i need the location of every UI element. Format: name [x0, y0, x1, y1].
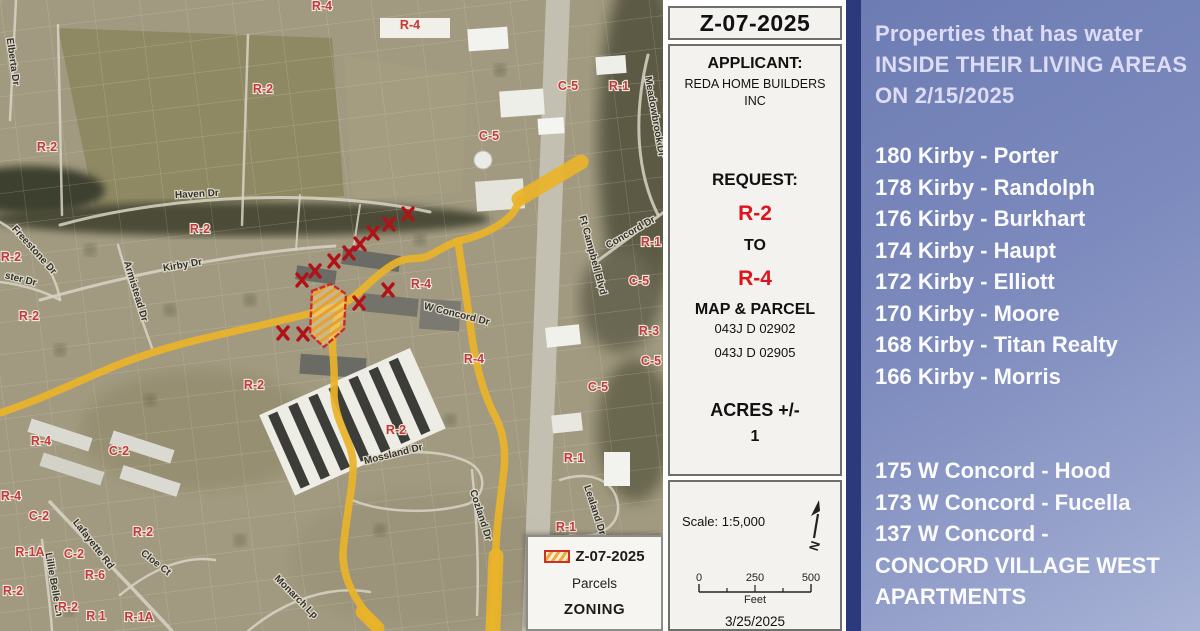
tree-dot: [444, 414, 456, 426]
panel-accent-strip: [846, 0, 861, 631]
tree-dot: [234, 534, 246, 546]
highlighted-road: [493, 556, 496, 630]
svg-text:500: 500: [802, 572, 820, 584]
building: [604, 452, 630, 486]
zone-label: R 1: [86, 609, 106, 623]
water-tank: [474, 151, 492, 169]
zone-label: C-2: [109, 444, 129, 458]
scale-label: Scale: 1:5,000: [682, 514, 765, 529]
street-label: Haven Dr: [175, 188, 220, 201]
tree-dot: [244, 294, 256, 306]
building: [595, 55, 626, 75]
acres-label: ACRES +/-: [710, 400, 800, 421]
building: [467, 27, 508, 52]
svg-text:250: 250: [746, 572, 764, 584]
parcel-number-2: 043J D 02905: [715, 345, 796, 360]
zone-label: R-2: [133, 525, 153, 539]
tree-dot: [164, 304, 176, 316]
zone-label: R-2: [37, 140, 57, 154]
zone-label: R-1A: [124, 610, 153, 624]
parcel-number-1: 043J D 02902: [715, 321, 796, 336]
zoning-map[interactable]: Haven DrKirby DrArmistead DrElberta DrFr…: [0, 0, 663, 631]
acres-value: 1: [751, 428, 760, 446]
zone-label: C-5: [558, 79, 578, 93]
building: [545, 324, 581, 347]
zone-label: R-4: [400, 18, 420, 32]
legend-parcels-label: Parcels: [572, 576, 617, 591]
building: [537, 117, 564, 135]
zone-label: R-1: [609, 79, 629, 93]
scale-bar: 0 250 500 Feet: [689, 570, 821, 606]
zone-label: R-2: [244, 378, 264, 392]
zone-label: C-5: [629, 274, 649, 288]
zone-label: C-5: [641, 354, 661, 368]
zone-label: C-2: [29, 509, 49, 523]
property-list-item: 172 Kirby - Elliott: [875, 266, 1194, 298]
building: [499, 88, 545, 117]
zone-label: C-2: [64, 547, 84, 561]
request-to-word: TO: [744, 237, 766, 255]
map-date: 3/25/2025: [670, 614, 840, 629]
north-letter: N: [806, 539, 823, 553]
property-list-item: 170 Kirby - Moore: [875, 298, 1194, 330]
request-label: REQUEST:: [712, 170, 798, 190]
tree-dot: [374, 524, 386, 536]
tree-dot: [144, 394, 156, 406]
building: [551, 412, 583, 433]
water-panel-title: Properties that has water INSIDE THEIR L…: [875, 18, 1194, 111]
case-number-title: Z-07-2025: [668, 6, 842, 40]
zone-label: R-4: [312, 0, 332, 13]
zone-label: R-6: [85, 568, 105, 582]
zone-label: R-3: [639, 324, 659, 338]
title-line-3: ON 2/15/2025: [875, 80, 1194, 111]
tree-dot: [54, 344, 66, 356]
parcel-hatch-swatch-icon: [544, 550, 570, 563]
zone-label: R-1A: [15, 545, 44, 559]
zone-label: R-2: [58, 600, 78, 614]
zone-label: R-1: [556, 520, 576, 534]
scale-box: Scale: 1:5,000 N 0 250 500 Feet 3/25/: [668, 480, 842, 631]
zone-label: R-2: [19, 309, 39, 323]
property-list-item: 178 Kirby - Randolph: [875, 172, 1194, 204]
zone-label: R-4: [411, 277, 431, 291]
zone-label: R-2: [190, 222, 210, 236]
map-legend: Z-07-2025 Parcels ZONING: [526, 535, 663, 631]
svg-text:0: 0: [696, 572, 702, 584]
request-from-zone: R-2: [738, 202, 772, 226]
water-properties-panel: Properties that has water INSIDE THEIR L…: [846, 0, 1200, 631]
zone-label: R-2: [3, 584, 23, 598]
zone-label: R-4: [31, 434, 51, 448]
property-list-item: 173 W Concord - Fucella: [875, 487, 1194, 519]
property-list-item: 168 Kirby - Titan Realty: [875, 329, 1194, 361]
concord-properties-list: 175 W Concord - Hood173 W Concord - Fuce…: [875, 455, 1194, 613]
title-line-2: INSIDE THEIR LIVING AREAS: [875, 49, 1194, 80]
legend-zoning-label: ZONING: [564, 601, 625, 618]
zone-label: R-1: [564, 451, 584, 465]
zone-label: R-1: [641, 235, 661, 249]
applicant-label: APPLICANT:: [707, 55, 802, 73]
zone-label: R-2: [386, 423, 406, 437]
property-list-item: 174 Kirby - Haupt: [875, 235, 1194, 267]
applicant-name: REDA HOME BUILDERS INC: [680, 76, 830, 110]
north-arrow-icon: N: [806, 498, 828, 556]
property-list-item: 175 W Concord - Hood: [875, 455, 1194, 487]
zone-label: R-4: [464, 352, 484, 366]
property-list-item: 176 Kirby - Burkhart: [875, 203, 1194, 235]
zone-label: C-5: [479, 129, 499, 143]
svg-text:Feet: Feet: [744, 594, 766, 606]
property-list-item: 137 W Concord - CONCORD VILLAGE WEST APA…: [875, 518, 1194, 613]
map-parcel-label: MAP & PARCEL: [695, 301, 815, 319]
property-list-item: 180 Kirby - Porter: [875, 140, 1194, 172]
legend-case-number: Z-07-2025: [575, 548, 644, 565]
zone-label: C-5: [588, 380, 608, 394]
case-details-box: APPLICANT: REDA HOME BUILDERS INC REQUES…: [668, 44, 842, 476]
zoning-presentation-slide: Haven DrKirby DrArmistead DrElberta DrFr…: [0, 0, 1200, 631]
request-to-zone: R-4: [738, 267, 772, 291]
kirby-properties-list: 180 Kirby - Porter178 Kirby - Randolph17…: [875, 140, 1194, 392]
info-panel: Z-07-2025 APPLICANT: REDA HOME BUILDERS …: [663, 0, 846, 631]
zone-label: R-2: [253, 82, 273, 96]
tree-dot: [494, 64, 506, 76]
title-line-1: Properties that has water: [875, 18, 1194, 49]
property-list-item: 166 Kirby - Morris: [875, 361, 1194, 393]
zone-label: R-2: [1, 250, 21, 264]
tree-dot: [84, 244, 96, 256]
tree-dot: [414, 234, 426, 246]
zone-label: R-4: [1, 489, 21, 503]
